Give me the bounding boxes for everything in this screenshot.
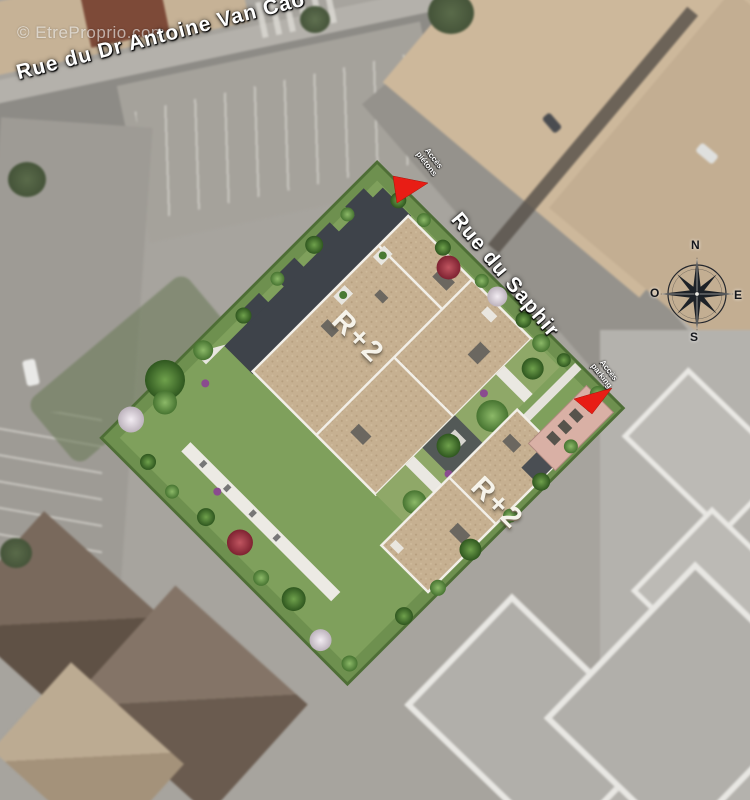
compass-north-label: N (691, 238, 700, 252)
compass-east-label: E (734, 288, 742, 302)
access-label-2: Accès parking (584, 350, 626, 396)
compass-west-label: O (650, 286, 659, 300)
site-plan-map: © EtreProprio.com Rue du Dr Antoine Van … (0, 0, 750, 800)
access-label-1: Accès piétons (409, 138, 451, 184)
compass-rose: N S O E (650, 238, 744, 348)
street-label-saphir: Rue du Saphir (446, 208, 564, 342)
compass-south-label: S (690, 330, 698, 344)
building-b-floors-label: R+2 (448, 454, 546, 552)
building-a-floors-label: R+2 (309, 288, 407, 386)
